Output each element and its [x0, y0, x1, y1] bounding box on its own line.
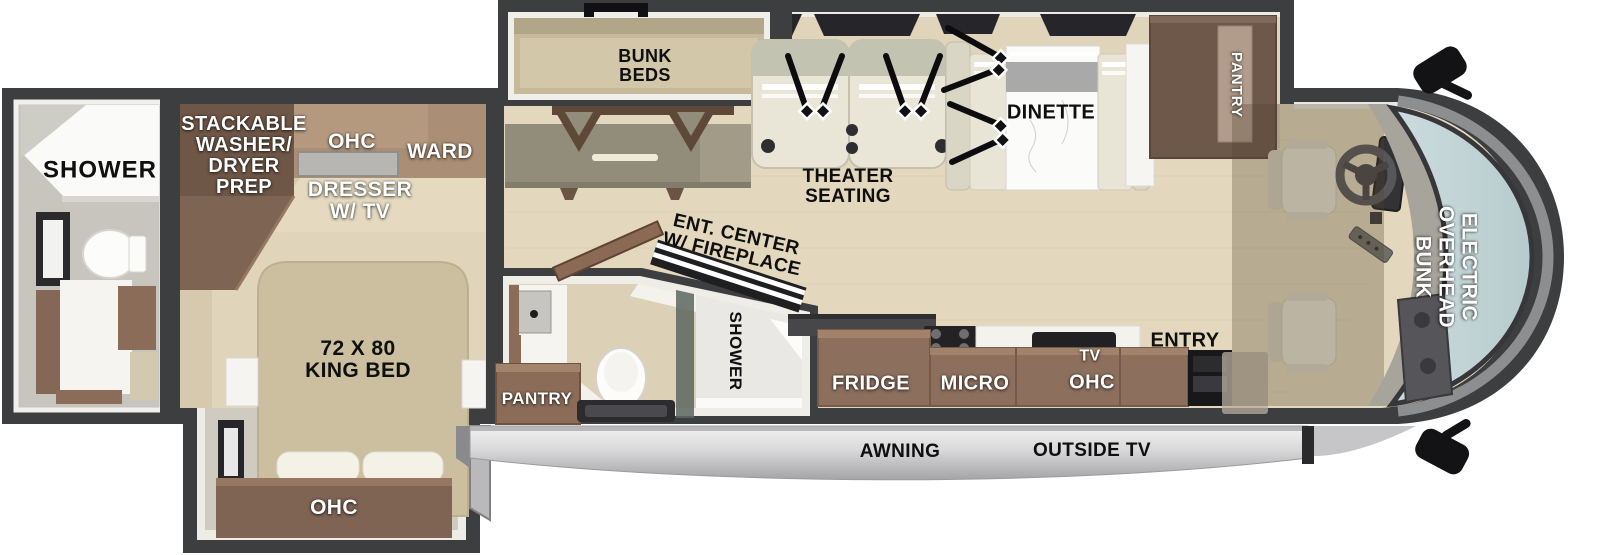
rv-floorplan: SHOWER STACKABLE WASHER/ DRYER PREP OHC … — [0, 0, 1600, 555]
bunk-bed-slide — [498, 2, 780, 106]
awning-strip — [456, 426, 1416, 480]
rear-vanity-cabinet — [36, 290, 60, 394]
foot-ohc-cabinet — [216, 478, 452, 538]
overhead-bunk-shade — [1232, 104, 1384, 406]
floorplan-drawing — [0, 0, 1600, 555]
rear-bathroom — [16, 102, 162, 410]
rear-linen-cabinet — [118, 286, 156, 350]
bed-pillow — [277, 452, 359, 482]
fridge-cabinet — [818, 330, 930, 406]
nightstand — [226, 358, 258, 406]
mid-bath-pantry-cabinet — [496, 364, 580, 424]
wall-rearbath-bedroom — [160, 88, 180, 424]
kitchen-lower-cabinets — [930, 348, 1188, 406]
cab-speaker-box — [1398, 294, 1452, 402]
mid-shower-glass-door — [676, 290, 694, 418]
rear-toilet-tank — [129, 236, 146, 272]
rear-shower-glass — [62, 196, 159, 202]
nightstand — [462, 360, 486, 408]
bed-pillow — [363, 452, 443, 482]
dresser-tv-screen — [298, 152, 398, 176]
theater-seats — [752, 40, 949, 168]
body-skirt-right — [1314, 426, 1416, 456]
